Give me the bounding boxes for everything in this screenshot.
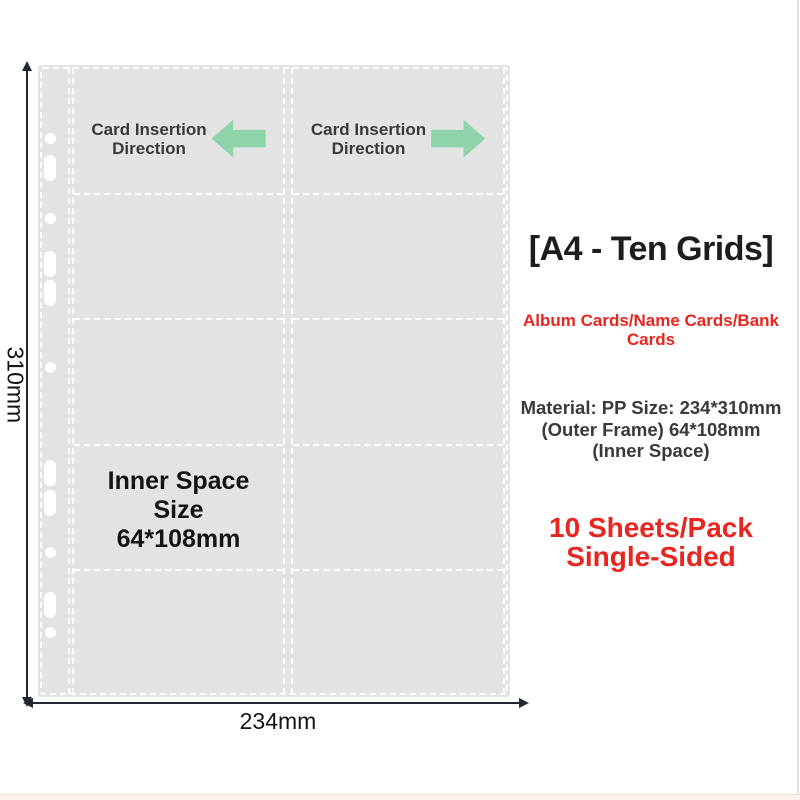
insertion-label-line: Card Insertion [91,120,206,139]
height-dimension-label: 310mm [2,347,29,421]
punch-hole-circle [45,133,56,144]
punch-hole-slot [44,460,56,486]
pack-spec-line: Single-Sided [505,542,797,571]
subtitle-line: Album Cards/Name Cards/Bank [505,311,797,330]
material-spec-line: (Outer Frame) 64*108mm [505,419,797,441]
pocket-cell: Card Insertion Direction [293,68,503,193]
product-subtitle: Album Cards/Name Cards/Bank Cards [505,311,797,349]
info-panel: [A4 - Ten Grids] Album Cards/Name Cards/… [505,0,797,800]
insertion-label-right: Card Insertion Direction [311,120,426,158]
page-right-edge-line [797,0,799,795]
pocket-cell [293,193,503,318]
material-spec-line: (Inner Space) [505,440,797,462]
punch-hole-slot [44,155,56,181]
product-title: [A4 - Ten Grids] [505,230,797,269]
inner-space-line: Size [108,496,250,525]
product-image: Card Insertion Direction Inner Space Siz… [0,0,800,800]
punch-hole-circle [45,213,56,224]
subtitle-line: Cards [505,330,797,349]
pocket-cell: Card Insertion Direction [74,68,283,193]
pocket-cell [293,569,503,694]
pocket-cell [74,193,283,318]
pocket-column-right: Card Insertion Direction [291,68,505,694]
arrow-left-icon [212,120,266,158]
insertion-label-line: Direction [311,139,426,158]
material-spec: Material: PP Size: 234*310mm (Outer Fram… [505,397,797,462]
insertion-label-left: Card Insertion Direction [91,120,206,158]
punch-hole-circle [45,547,56,558]
punch-hole-circle [45,627,56,638]
material-spec-line: Material: PP Size: 234*310mm [505,397,797,419]
punch-hole-slot [44,592,56,618]
punch-hole-slot [44,280,56,306]
width-dimension-label: 234mm [178,708,378,735]
inner-space-label: Inner Space Size 64*108mm [108,467,250,554]
pocket-column-left: Card Insertion Direction Inner Space Siz… [72,68,285,694]
pocket-cell: Inner Space Size 64*108mm [74,444,283,569]
arrow-right-icon [431,120,485,158]
insertion-label-line: Card Insertion [311,120,426,139]
pack-spec-line: 10 Sheets/Pack [505,513,797,542]
inner-space-line: 64*108mm [108,525,250,554]
punch-hole-circle [45,362,56,373]
sleeve-page: Card Insertion Direction Inner Space Siz… [38,65,510,697]
page-bottom-strip [0,794,800,800]
insertion-label-line: Direction [91,139,206,158]
pack-spec: 10 Sheets/Pack Single-Sided [505,513,797,571]
pocket-cell [293,318,503,443]
punch-hole-slot [44,251,56,277]
punch-hole-slot [44,490,56,516]
width-dimension-line [32,702,520,704]
pocket-cell [74,569,283,694]
pocket-cell [74,318,283,443]
pocket-cell [293,444,503,569]
inner-space-line: Inner Space [108,467,250,496]
